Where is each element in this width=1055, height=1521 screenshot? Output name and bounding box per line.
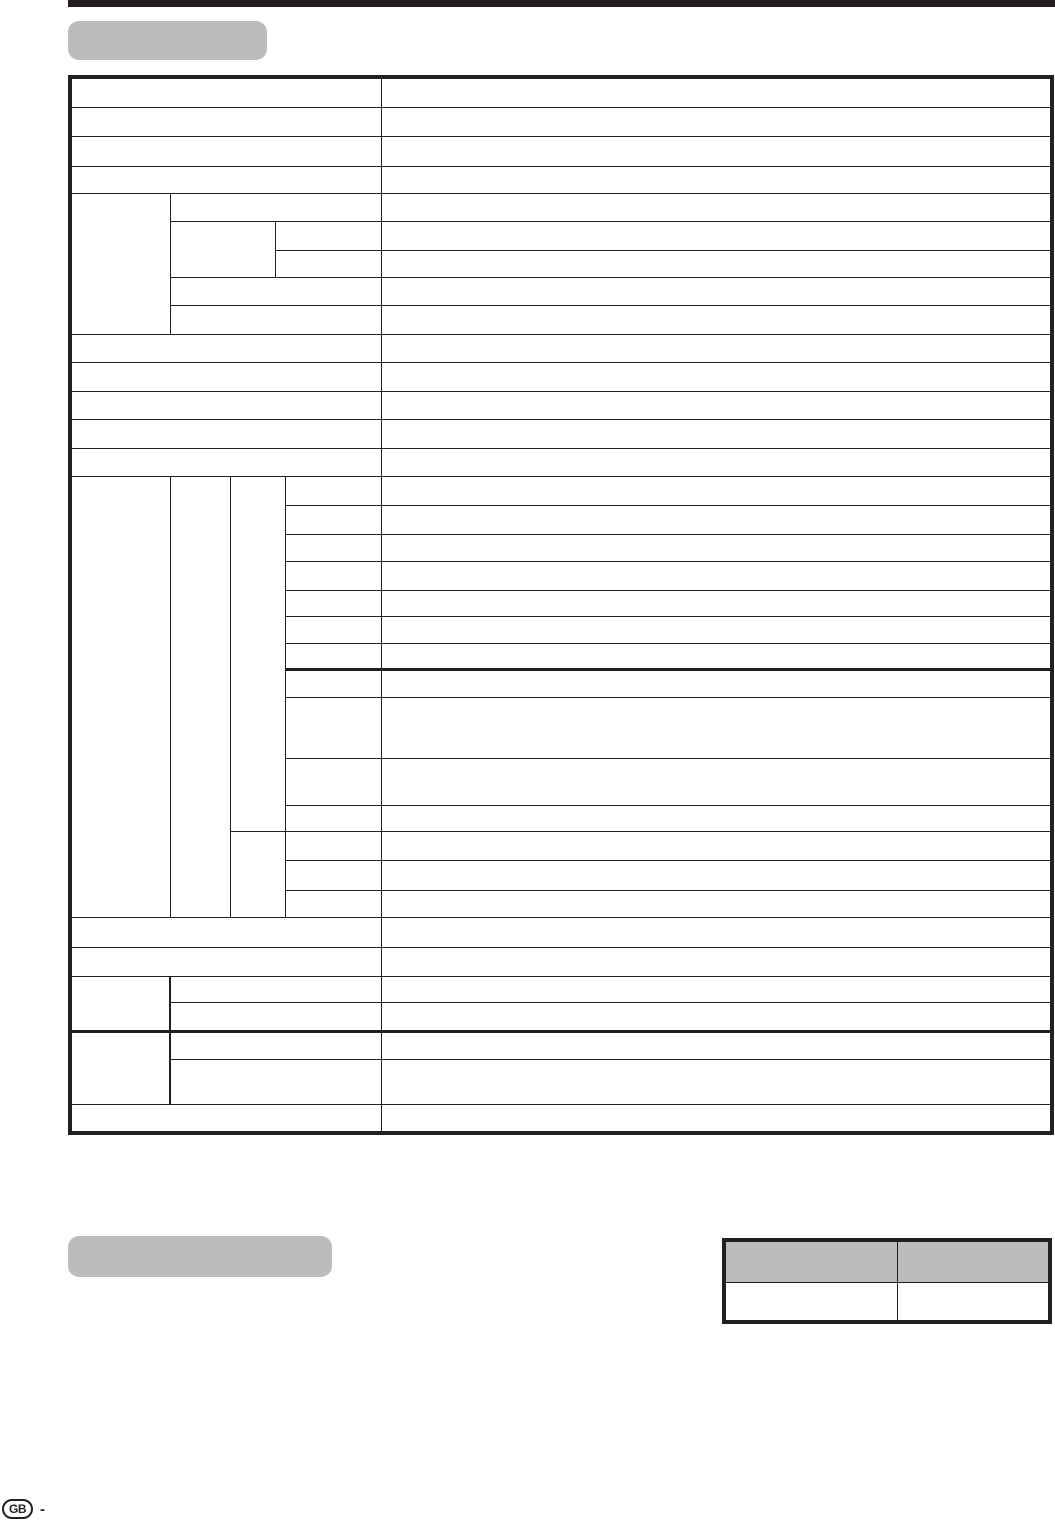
spec-label-cell: [286, 590, 381, 616]
spec-value-cell: [381, 166, 1052, 193]
spec-label-cell: [70, 107, 381, 136]
spec-value-cell: [381, 831, 1052, 860]
spec-value-cell: [381, 758, 1052, 805]
spec-value-cell: [381, 890, 1052, 917]
spec-label-cell: [70, 136, 381, 166]
spec-value-cell: [381, 643, 1052, 669]
spec-label-cell: [70, 448, 381, 476]
spec-label-cell: [286, 860, 381, 890]
spec-value-cell: [381, 476, 1052, 505]
spec-label-cell: [70, 419, 381, 448]
spec-label-cell: [170, 1002, 381, 1031]
section-heading-placeholder-2: [68, 1236, 332, 1277]
spec-label-cell: [70, 917, 381, 947]
spec-label-cell: [286, 890, 381, 917]
spec-label-cell: [286, 758, 381, 805]
spec-value-cell: [381, 305, 1052, 334]
side-table-value-cell: [897, 1283, 1050, 1323]
spec-label-cell: [70, 166, 381, 193]
spec-label-cell: [286, 697, 381, 758]
spec-value-cell: [381, 277, 1052, 305]
manual-page: GB -: [0, 0, 1055, 1521]
page-top-rule: [68, 0, 1055, 7]
spec-value-cell: [381, 193, 1052, 221]
spec-value-cell: [381, 334, 1052, 362]
spec-value-cell: [381, 947, 1052, 976]
spec-label-cell: [70, 1104, 381, 1133]
spec-label-cell: [286, 534, 381, 561]
spec-value-cell: [381, 590, 1052, 616]
spec-value-cell: [381, 561, 1052, 590]
spec-label-cell: [170, 305, 381, 334]
spec-value-cell: [381, 534, 1052, 561]
spec-label-cell: [70, 362, 381, 391]
spec-label-cell: [286, 561, 381, 590]
spec-value-cell: [381, 976, 1052, 1002]
spec-label-cell: [286, 805, 381, 831]
country-code-badge: GB: [2, 1499, 33, 1519]
spec-value-cell: [381, 505, 1052, 534]
spec-value-cell: [381, 448, 1052, 476]
spec-group-cell: [70, 193, 170, 334]
spec-value-cell: [381, 77, 1052, 107]
spec-value-cell: [381, 1002, 1052, 1031]
spec-group-cell: [70, 976, 170, 1031]
spec-label-cell: [286, 669, 381, 697]
side-table: [722, 1238, 1052, 1324]
spec-value-cell: [381, 917, 1052, 947]
spec-value-cell: [381, 860, 1052, 890]
spec-subgroup-cell: [170, 476, 230, 917]
spec-value-cell: [381, 136, 1052, 166]
spec-value-cell: [381, 1031, 1052, 1059]
spec-value-cell: [381, 391, 1052, 419]
spec-value-cell: [381, 419, 1052, 448]
spec-label-cell: [170, 1059, 381, 1104]
spec-subgroup-cell: [170, 221, 275, 277]
spec-label-cell: [70, 947, 381, 976]
spec-label-cell: [276, 250, 381, 277]
spec-label-cell: [70, 77, 381, 107]
spec-label-cell: [170, 193, 381, 221]
spec-label-cell: [170, 976, 381, 1002]
spec-value-cell: [381, 362, 1052, 391]
spec-value-cell: [381, 669, 1052, 697]
side-table-header-cell: [897, 1240, 1050, 1283]
spec-label-cell: [286, 643, 381, 669]
page-footer-mark: GB -: [2, 1499, 45, 1519]
footer-separator: -: [40, 1501, 45, 1518]
spec-subgroup-cell: [231, 831, 286, 917]
side-table-header-cell: [724, 1240, 897, 1283]
spec-label-cell: [286, 476, 381, 505]
spec-value-cell: [381, 1059, 1052, 1104]
spec-label-cell: [286, 616, 381, 643]
spec-subgroup-cell: [231, 476, 286, 831]
spec-label-cell: [170, 277, 381, 305]
spec-label-cell: [170, 1031, 381, 1059]
side-table-value-cell: [724, 1283, 897, 1323]
spec-value-cell: [381, 250, 1052, 277]
spec-label-cell: [70, 391, 381, 419]
spec-value-cell: [381, 107, 1052, 136]
spec-label-cell: [276, 221, 381, 250]
spec-value-cell: [381, 221, 1052, 250]
spec-group-cell: [70, 476, 170, 917]
spec-label-cell: [70, 334, 381, 362]
specifications-table: [68, 75, 1054, 1135]
spec-value-cell: [381, 697, 1052, 758]
spec-value-cell: [381, 616, 1052, 643]
spec-value-cell: [381, 1104, 1052, 1133]
spec-value-cell: [381, 805, 1052, 831]
spec-label-cell: [286, 831, 381, 860]
section-heading-placeholder-1: [68, 21, 267, 60]
spec-group-cell: [70, 1031, 170, 1104]
spec-label-cell: [286, 505, 381, 534]
